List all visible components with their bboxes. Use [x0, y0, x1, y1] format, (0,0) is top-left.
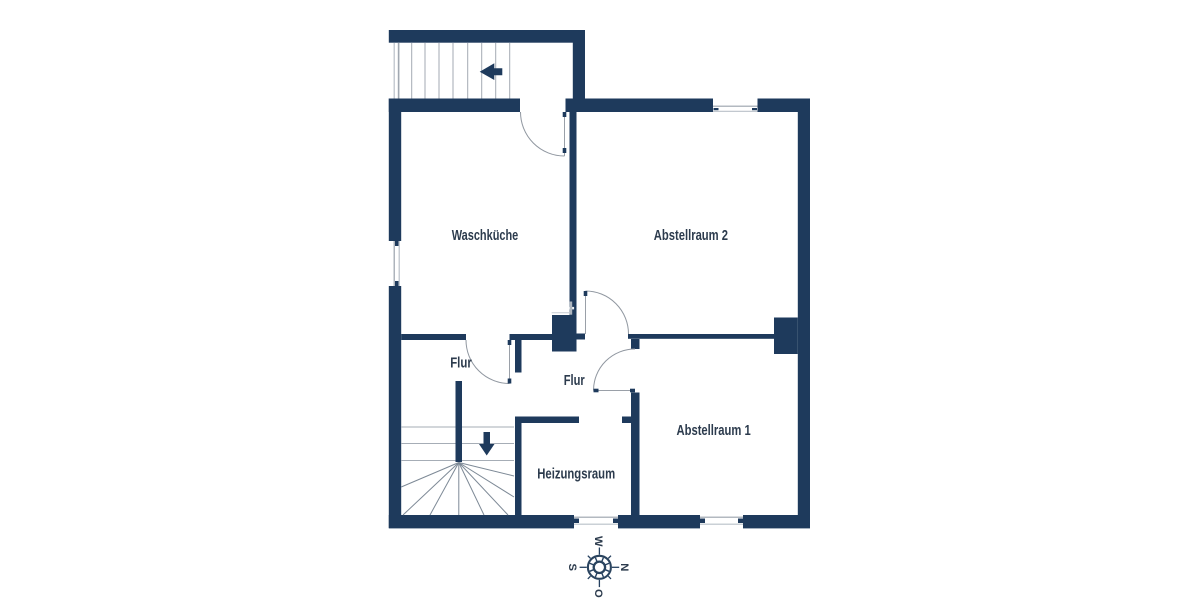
svg-text:Heizungsraum: Heizungsraum [537, 465, 615, 482]
svg-text:Abstellraum 1: Abstellraum 1 [677, 422, 751, 439]
svg-text:N: N [618, 563, 630, 571]
svg-text:S: S [566, 564, 578, 572]
svg-text:Flur: Flur [564, 372, 585, 389]
svg-text:W: W [592, 536, 604, 547]
svg-text:Abstellraum 2: Abstellraum 2 [654, 227, 728, 244]
svg-text:O: O [592, 589, 604, 598]
svg-text:Waschküche: Waschküche [452, 227, 519, 244]
svg-text:Flur: Flur [450, 355, 472, 372]
